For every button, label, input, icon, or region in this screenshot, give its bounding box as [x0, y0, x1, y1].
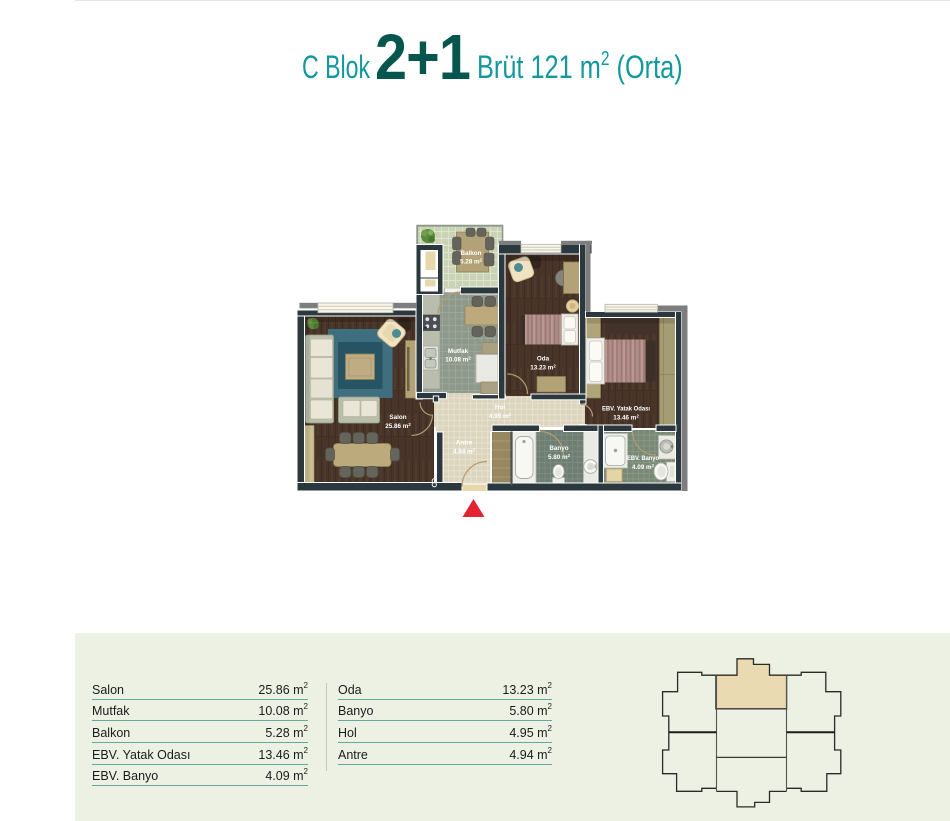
svg-text:Mutfak: Mutfak	[448, 348, 469, 355]
svg-text:13.23 m2: 13.23 m2	[530, 364, 556, 372]
svg-text:5.28 m2: 5.28 m2	[460, 258, 483, 266]
svg-text:4.95 m2: 4.95 m2	[489, 412, 512, 420]
svg-text:4.09 m2: 4.09 m2	[632, 463, 655, 471]
svg-text:Antre: Antre	[456, 440, 473, 447]
svg-text:5.80 m2: 5.80 m2	[548, 453, 571, 461]
svg-text:Salon: Salon	[389, 414, 406, 421]
svg-text:Oda: Oda	[537, 356, 550, 363]
svg-text:EBV. Banyo: EBV. Banyo	[627, 455, 659, 462]
svg-text:25.86 m2: 25.86 m2	[385, 422, 411, 430]
svg-text:Hol: Hol	[495, 404, 505, 411]
svg-text:EBV. Yatak Odası: EBV. Yatak Odası	[602, 406, 650, 413]
svg-text:10.08 m2: 10.08 m2	[445, 356, 471, 364]
svg-text:13.46 m2: 13.46 m2	[613, 414, 639, 422]
svg-text:Banyo: Banyo	[549, 445, 568, 452]
svg-text:4.94 m2: 4.94 m2	[453, 448, 476, 456]
svg-text:Balkon: Balkon	[461, 250, 482, 257]
